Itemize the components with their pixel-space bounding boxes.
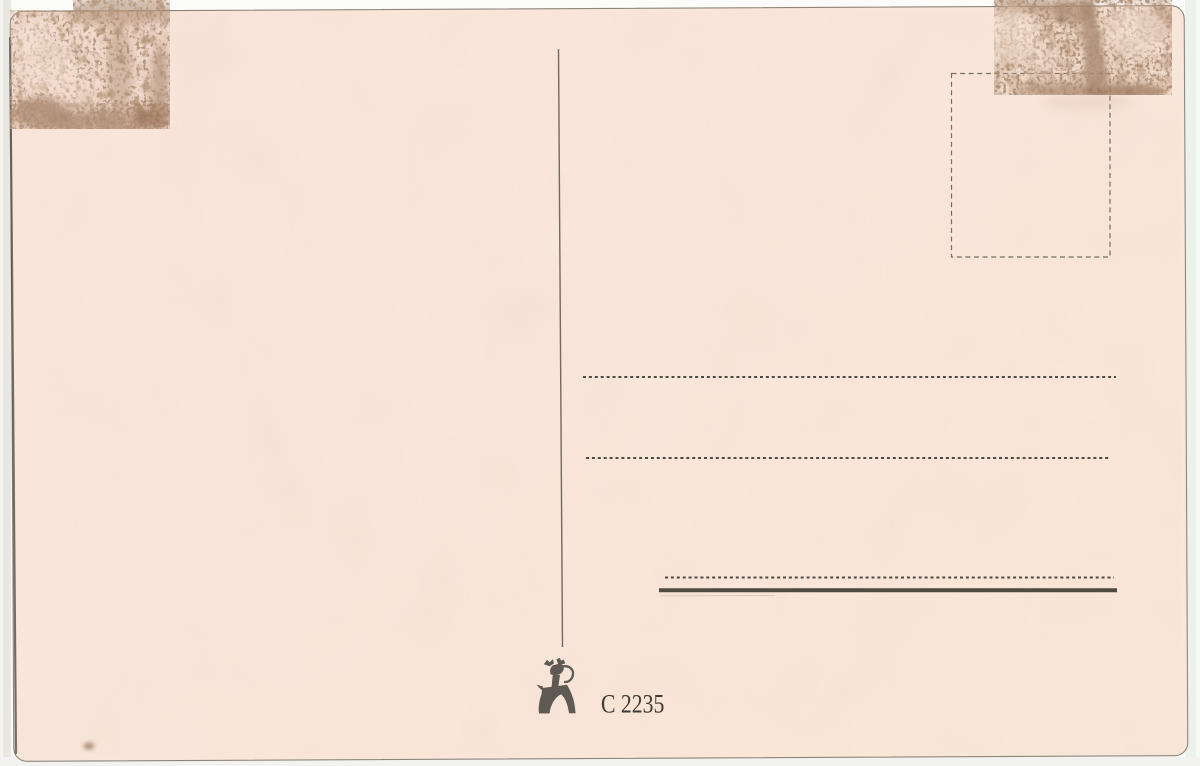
svg-text:C 2235: C 2235 [601,690,664,720]
